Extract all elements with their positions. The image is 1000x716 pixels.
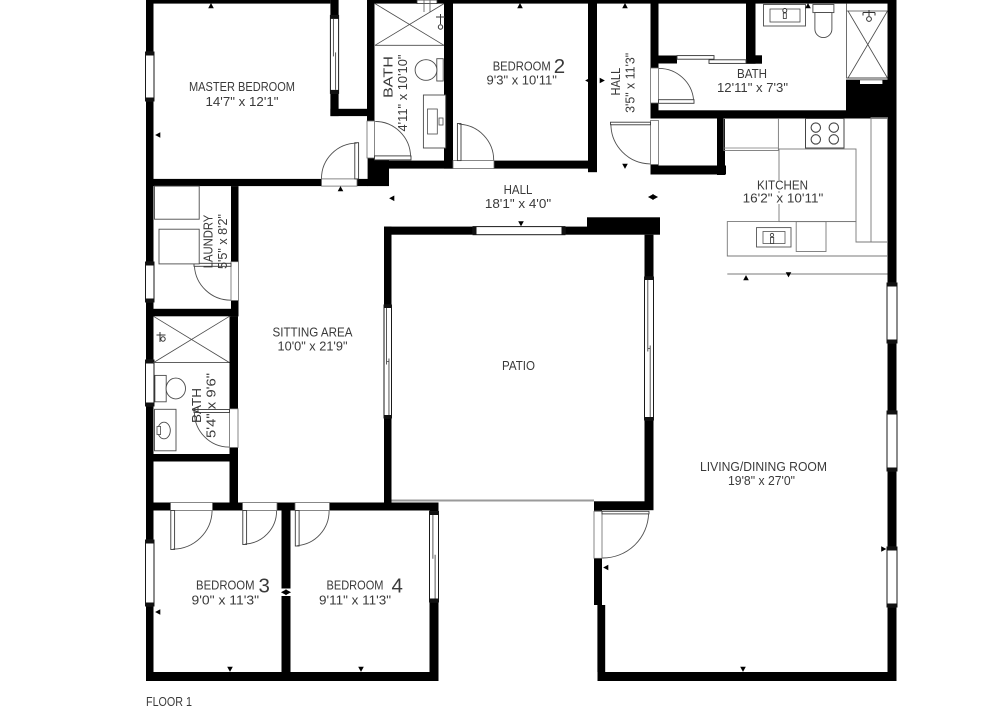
svg-text:9'0" x 11'3": 9'0" x 11'3" [192, 594, 260, 608]
svg-text:9'11" x 11'3": 9'11" x 11'3" [319, 594, 391, 608]
svg-text:3'5" x 11'3": 3'5" x 11'3" [624, 53, 638, 113]
svg-text:12'11" x 7'3": 12'11" x 7'3" [717, 81, 788, 95]
svg-text:4'11" x 10'10": 4'11" x 10'10" [396, 55, 410, 132]
svg-text:9'3" x 10'11": 9'3" x 10'11" [487, 73, 557, 87]
svg-text:BATH: BATH [382, 56, 396, 98]
svg-text:5'4" x 9'6": 5'4" x 9'6" [205, 373, 219, 438]
svg-text:HALL: HALL [504, 183, 533, 197]
svg-text:FLOOR 1: FLOOR 1 [146, 694, 192, 709]
svg-text:5'5" x 8'2": 5'5" x 8'2" [216, 214, 230, 269]
svg-text:LIVING/DINING ROOM: LIVING/DINING ROOM [700, 460, 827, 474]
svg-text:MASTER BEDROOM: MASTER BEDROOM [189, 80, 295, 94]
svg-text:HALL: HALL [609, 68, 623, 96]
svg-text:PATIO: PATIO [502, 359, 535, 373]
svg-text:LAUNDRY: LAUNDRY [202, 214, 216, 268]
svg-text:16'2" x 10'11": 16'2" x 10'11" [743, 191, 824, 205]
svg-text:BEDROOM: BEDROOM [327, 579, 384, 593]
svg-text:10'0" x 21'9": 10'0" x 21'9" [278, 340, 348, 354]
svg-text:BATH: BATH [737, 67, 767, 81]
svg-text:3: 3 [259, 575, 270, 598]
svg-text:BEDROOM: BEDROOM [493, 60, 551, 74]
svg-text:4: 4 [392, 575, 403, 598]
svg-text:BATH: BATH [190, 388, 204, 423]
svg-text:18'1" x 4'0": 18'1" x 4'0" [485, 197, 551, 211]
svg-text:14'7" x 12'1": 14'7" x 12'1" [206, 95, 279, 109]
svg-text:SITTING AREA: SITTING AREA [273, 326, 354, 340]
svg-text:19'8" x 27'0": 19'8" x 27'0" [728, 474, 795, 488]
svg-text:BEDROOM: BEDROOM [196, 579, 255, 593]
svg-text:KITCHEN: KITCHEN [757, 178, 808, 192]
